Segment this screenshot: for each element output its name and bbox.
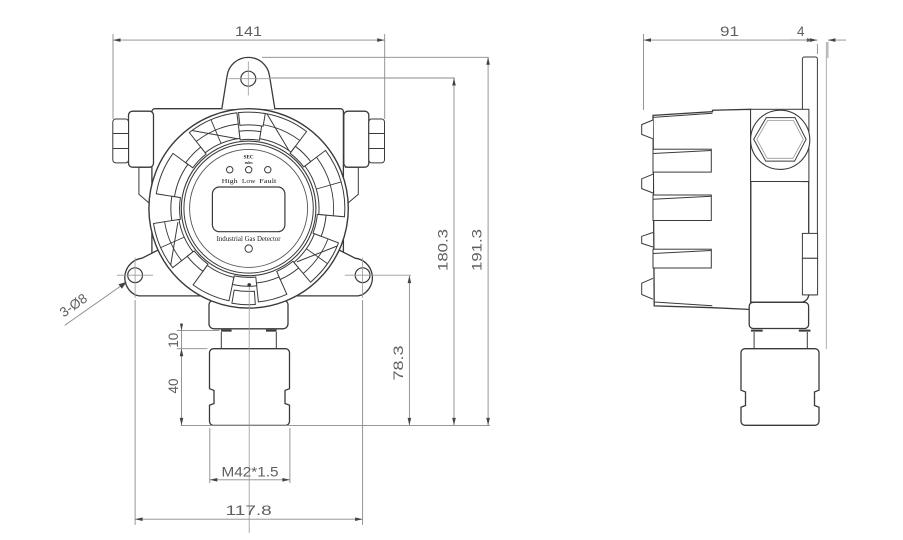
svg-text:78.3: 78.3 — [391, 346, 406, 381]
svg-text:4: 4 — [797, 24, 805, 39]
svg-text:High: High — [222, 178, 239, 185]
svg-text:91: 91 — [720, 24, 739, 39]
svg-text:Low: Low — [242, 178, 256, 185]
svg-text:Industrial Gas Detector: Industrial Gas Detector — [217, 236, 282, 243]
svg-text:rules: rules — [245, 160, 253, 165]
svg-text:40: 40 — [166, 378, 181, 393]
svg-text:191.3: 191.3 — [470, 229, 485, 271]
svg-text:141: 141 — [235, 24, 262, 39]
svg-text:Fault: Fault — [259, 178, 276, 185]
svg-text:117.8: 117.8 — [226, 503, 272, 518]
svg-text:3-Ø8: 3-Ø8 — [57, 291, 90, 321]
svg-text:M42*1.5: M42*1.5 — [222, 465, 279, 480]
svg-text:180.3: 180.3 — [436, 229, 451, 271]
svg-text:10: 10 — [166, 333, 181, 348]
